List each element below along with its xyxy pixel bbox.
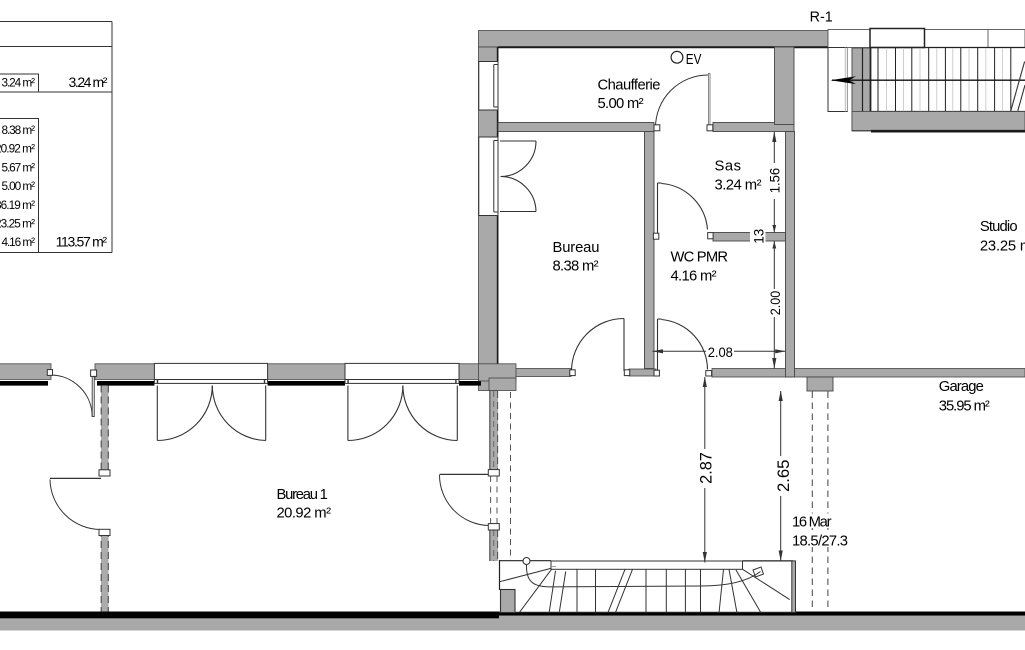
svg-text:EV: EV [686, 52, 702, 68]
svg-text:35.95 m²: 35.95 m² [939, 399, 990, 415]
svg-text:13: 13 [751, 228, 767, 243]
svg-text:2.00: 2.00 [767, 291, 783, 316]
svg-text:18.5/27.3: 18.5/27.3 [792, 534, 848, 550]
svg-text:5.67 m²: 5.67 m² [2, 160, 36, 174]
svg-text:23.25 m²: 23.25 m² [0, 217, 35, 231]
svg-text:5.00 m²: 5.00 m² [2, 179, 36, 193]
svg-text:36.19 m²: 36.19 m² [0, 198, 35, 212]
svg-text:2.65: 2.65 [775, 460, 793, 493]
svg-text:23.25 m²: 23.25 m² [980, 239, 1025, 255]
svg-text:Bureau 1: Bureau 1 [277, 487, 328, 503]
svg-text:Sas: Sas [715, 159, 742, 175]
svg-text:16 Mar: 16 Mar [792, 515, 832, 531]
svg-text:Studio: Studio [980, 219, 1018, 235]
svg-text:Garage: Garage [939, 379, 984, 395]
svg-text:Bureau: Bureau [553, 240, 600, 256]
svg-text:1.56: 1.56 [767, 168, 783, 194]
svg-text:5.00 m²: 5.00 m² [598, 96, 644, 112]
svg-text:4.16 m²: 4.16 m² [671, 269, 717, 285]
svg-text:3.24 m²: 3.24 m² [715, 178, 762, 194]
svg-text:WC PMR: WC PMR [671, 250, 729, 266]
svg-text:20.92 m²: 20.92 m² [277, 505, 332, 521]
svg-text:20.92 m²: 20.92 m² [0, 142, 35, 156]
svg-text:113.57 m²: 113.57 m² [56, 234, 108, 250]
svg-text:8.38 m²: 8.38 m² [553, 259, 599, 275]
svg-text:3.24 m²: 3.24 m² [69, 74, 108, 90]
svg-text:4.16 m²: 4.16 m² [2, 235, 36, 249]
svg-text:R-1: R-1 [810, 9, 833, 25]
svg-text:2.08: 2.08 [708, 344, 733, 360]
svg-text:3.24 m²: 3.24 m² [2, 76, 36, 90]
svg-text:Chaufferie: Chaufferie [598, 78, 661, 94]
svg-text:8.38 m²: 8.38 m² [2, 123, 36, 137]
svg-text:2.87: 2.87 [698, 452, 716, 484]
